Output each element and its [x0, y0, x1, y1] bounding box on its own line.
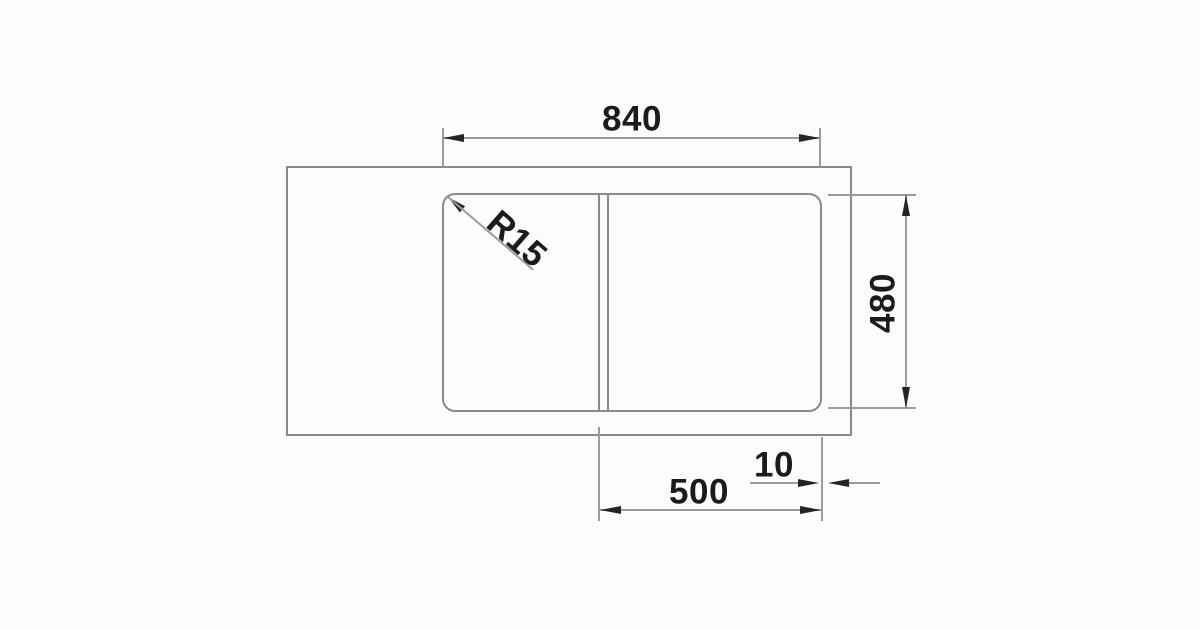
dim-480-arrow-down-icon [902, 387, 910, 408]
dim-10-arrow-left-icon [798, 479, 819, 487]
technical-drawing-canvas: 840 480 R15 500 10 [0, 0, 1200, 630]
dim-480-line [905, 195, 907, 408]
dim-500-label: 500 [669, 475, 729, 510]
dim-10-label: 10 [754, 448, 794, 483]
dim-840-arrow-right-icon [799, 134, 820, 142]
dim-10-arrow-right-icon [828, 479, 849, 487]
bowl-divider-line-left [598, 195, 600, 410]
dim-480-arrow-up-icon [902, 195, 910, 216]
dim-840-arrow-left-icon [443, 134, 464, 142]
dim-840-label: 840 [602, 102, 662, 137]
dim-480-label: 480 [866, 273, 901, 333]
dim-500-arrow-right-icon [800, 506, 821, 514]
dim-10-tail-right [849, 482, 880, 484]
dim-500-arrow-left-icon [600, 506, 621, 514]
bowl-divider-line-right [607, 195, 609, 410]
dim-500-extension-right [821, 437, 823, 521]
